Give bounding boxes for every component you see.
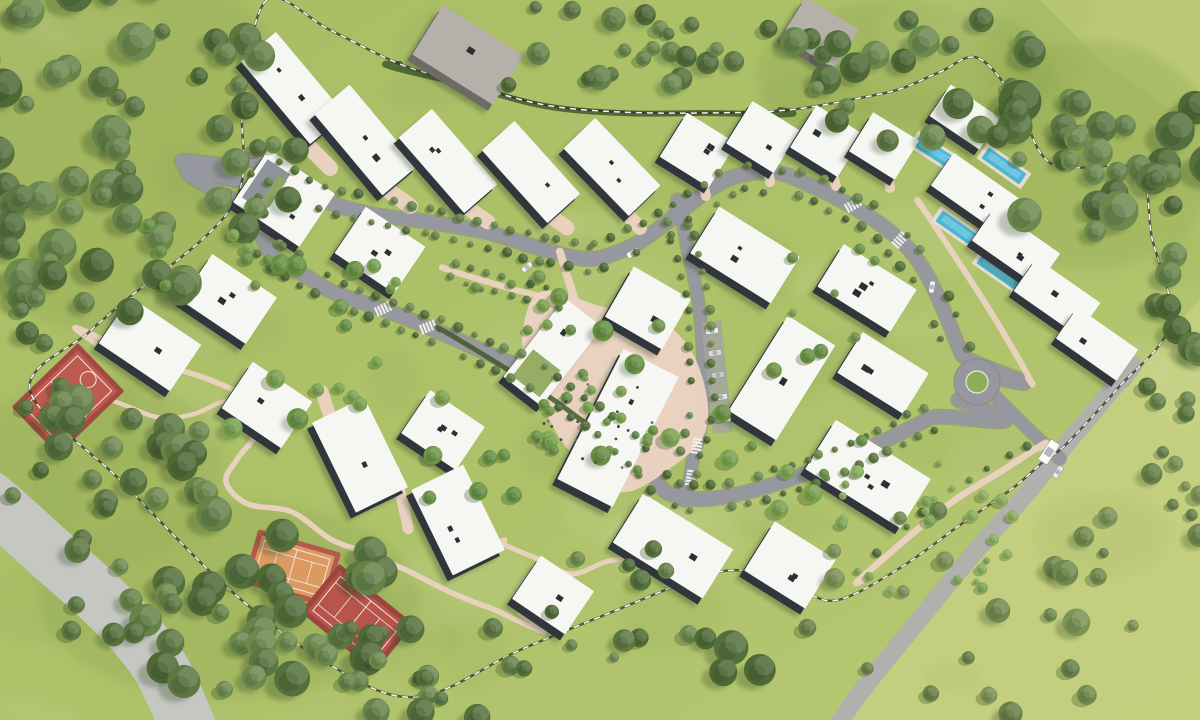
person bbox=[651, 421, 654, 424]
person bbox=[574, 439, 577, 442]
person bbox=[586, 424, 589, 427]
person bbox=[636, 386, 639, 389]
person bbox=[581, 457, 584, 460]
person bbox=[594, 461, 597, 464]
person bbox=[576, 420, 579, 423]
person bbox=[564, 400, 567, 403]
person bbox=[615, 438, 618, 441]
person bbox=[547, 420, 550, 423]
person bbox=[587, 383, 590, 386]
roundabout bbox=[954, 359, 1000, 405]
person bbox=[543, 422, 546, 425]
person bbox=[627, 429, 630, 432]
person bbox=[617, 425, 620, 428]
person bbox=[621, 466, 624, 469]
person bbox=[560, 438, 563, 441]
masterplan-aerial-render bbox=[0, 0, 1200, 720]
site-plan-canvas bbox=[0, 0, 1200, 720]
person bbox=[550, 425, 553, 428]
person bbox=[616, 410, 619, 413]
